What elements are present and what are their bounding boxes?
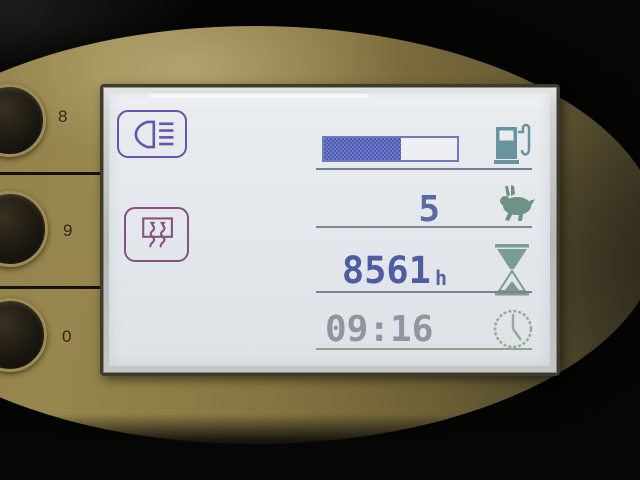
keypad-knob-9[interactable] — [0, 191, 48, 267]
row-divider — [316, 226, 532, 228]
heater-vent-icon — [134, 215, 180, 254]
hour-meter-value: 8561 — [342, 252, 431, 289]
hour-meter-unit: h — [435, 268, 447, 289]
keypad-knob-8[interactable] — [0, 84, 46, 157]
hour-meter: 8561 h — [289, 252, 447, 289]
keypad-button-9[interactable]: 9 — [0, 175, 106, 286]
headlight-indicator — [117, 110, 187, 158]
fuel-gauge-bar — [322, 136, 459, 162]
fuel-bar-fill — [324, 138, 401, 160]
row-divider — [316, 348, 532, 350]
lcd-screen: 5 8561 h — [109, 93, 550, 366]
row-divider — [316, 168, 532, 170]
keypad-label-9: 9 — [63, 221, 72, 241]
keypad-knob-0[interactable] — [0, 298, 47, 372]
rabbit-icon — [494, 185, 536, 223]
keypad-button-0[interactable]: 0 — [0, 289, 106, 410]
clock-icon — [492, 307, 534, 352]
keypad-label-8: 8 — [58, 107, 67, 127]
dashboard-photo: 8 9 0 — [0, 0, 640, 480]
row-divider — [316, 291, 532, 293]
lcd-bezel: 5 8561 h — [100, 84, 560, 376]
keypad: 8 9 0 — [0, 60, 106, 410]
speed-level-value: 5 — [316, 192, 440, 228]
clock-value: 09:16 — [325, 312, 433, 348]
headlight-icon — [128, 119, 176, 150]
fuel-pump-icon — [494, 123, 532, 166]
heater-indicator — [124, 207, 189, 262]
hourglass-icon — [492, 244, 532, 296]
keypad-label-0: 0 — [62, 327, 71, 347]
keypad-button-8[interactable]: 8 — [0, 60, 106, 172]
